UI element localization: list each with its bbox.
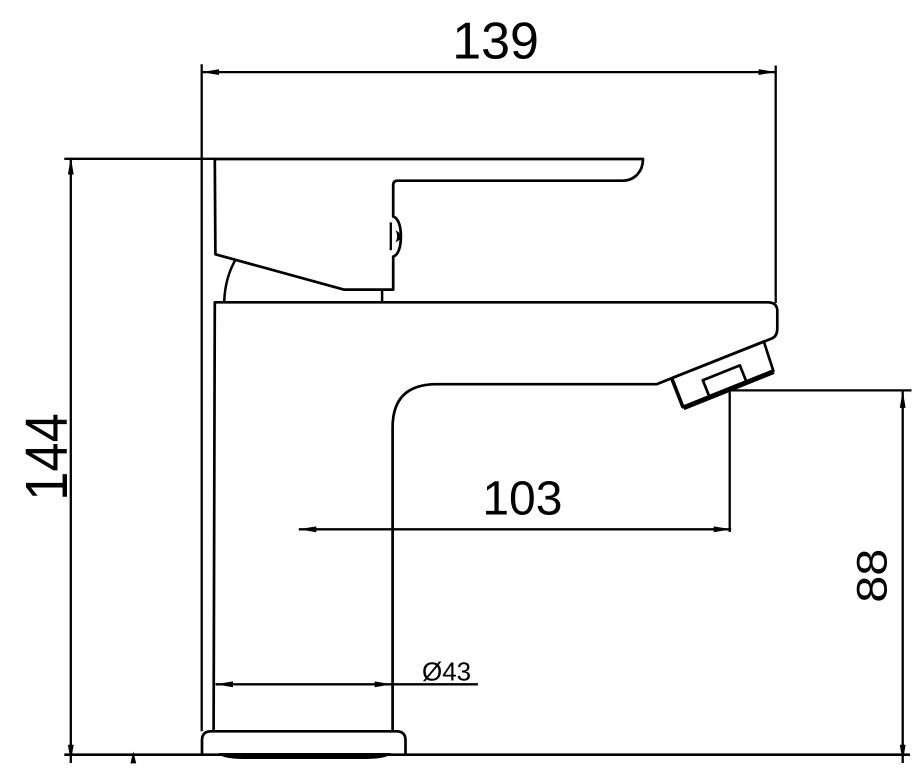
svg-text:88: 88 [847, 549, 896, 603]
svg-text:Ø43: Ø43 [422, 657, 471, 687]
svg-text:139: 139 [452, 13, 539, 71]
svg-text:144: 144 [13, 413, 80, 501]
svg-text:103: 103 [482, 473, 562, 526]
